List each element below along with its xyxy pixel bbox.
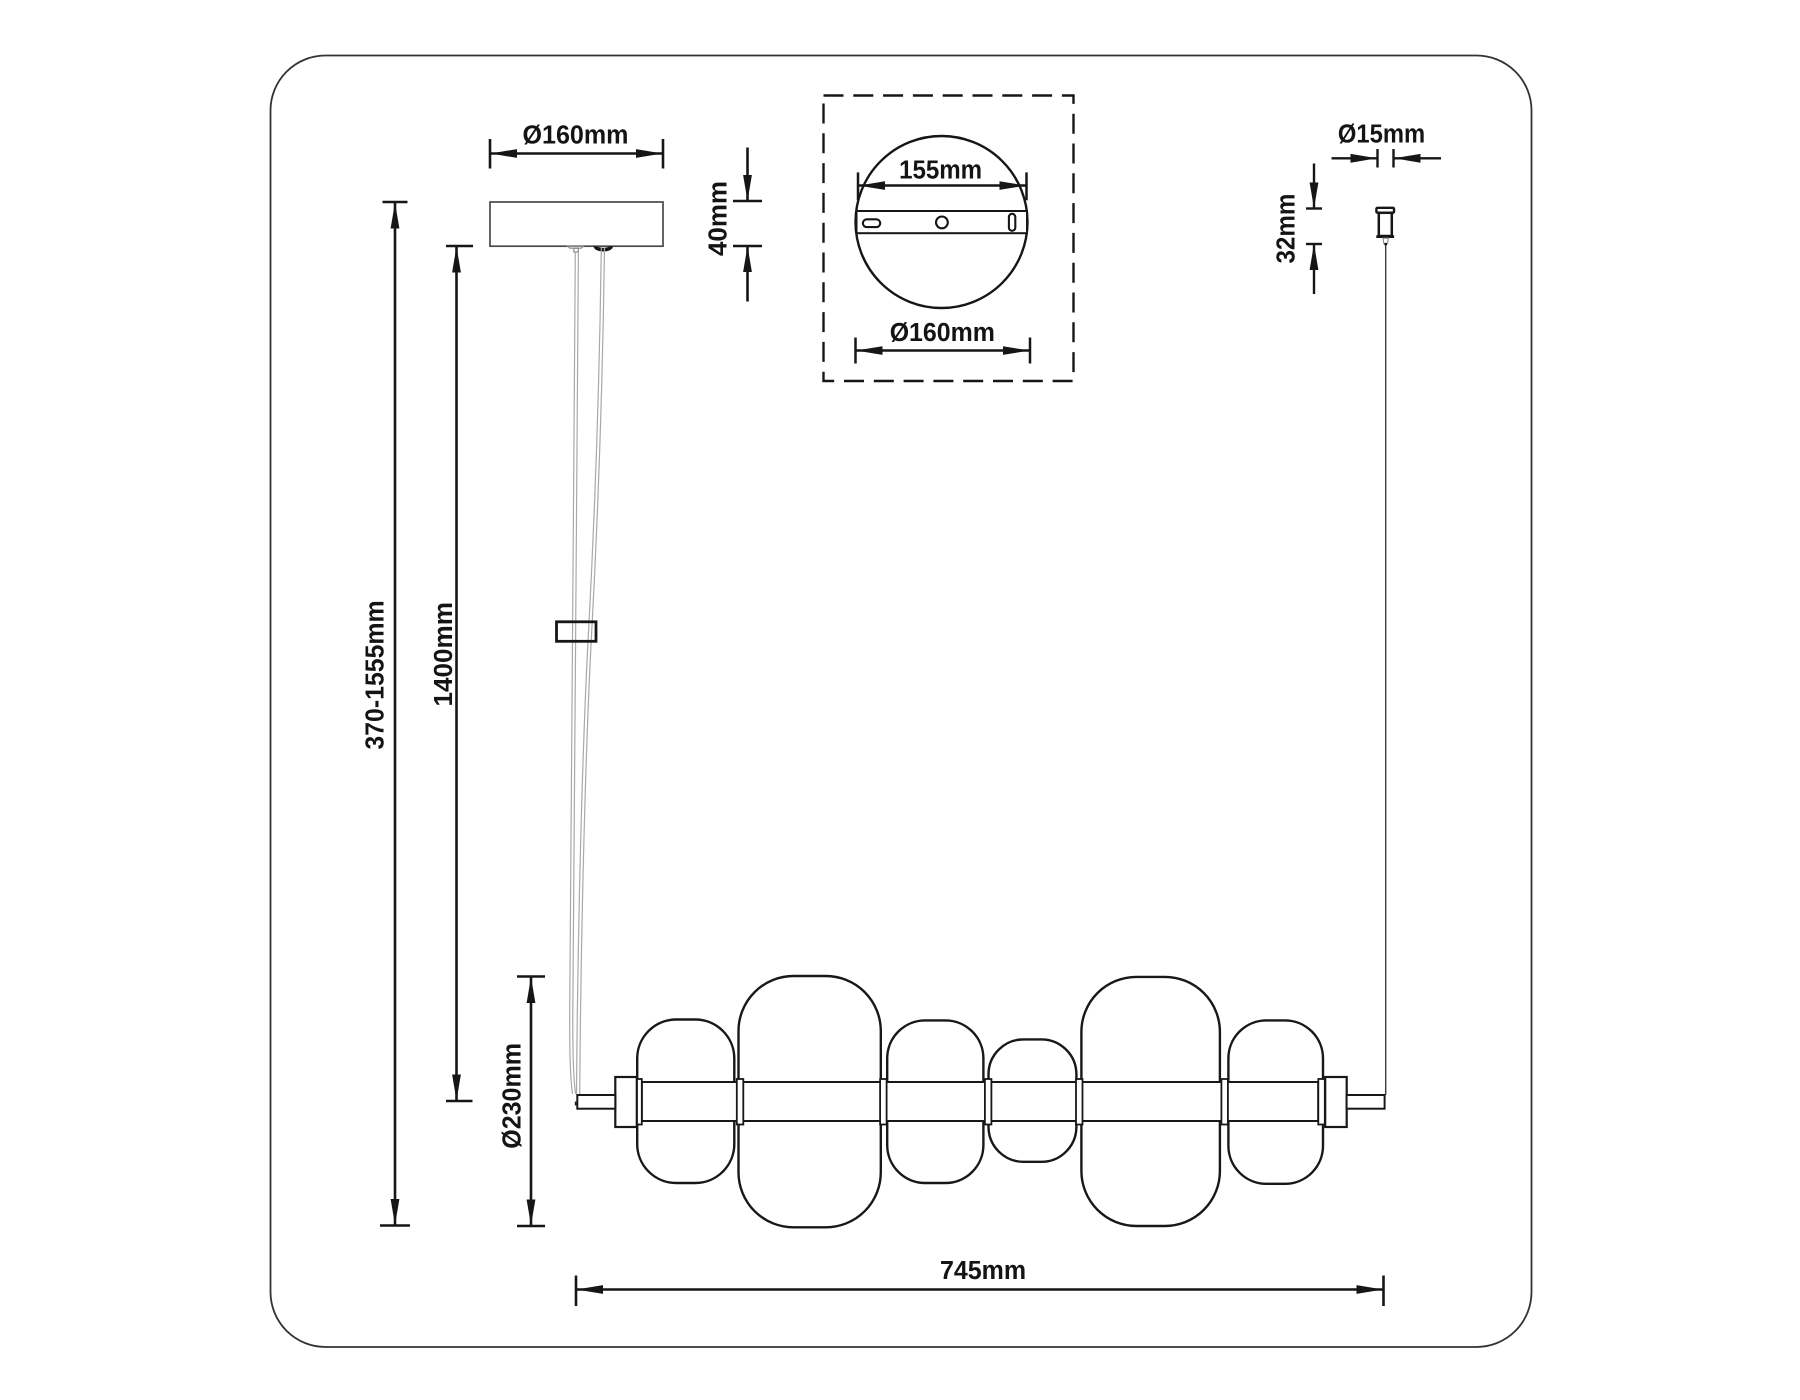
svg-text:1400mm: 1400mm: [430, 602, 458, 706]
svg-text:Ø160mm: Ø160mm: [523, 121, 629, 149]
svg-text:Ø160mm: Ø160mm: [890, 319, 995, 347]
svg-text:Ø15mm: Ø15mm: [1338, 121, 1425, 149]
svg-text:32mm: 32mm: [1272, 194, 1300, 264]
svg-text:745mm: 745mm: [940, 1257, 1026, 1285]
svg-text:40mm: 40mm: [705, 181, 733, 256]
svg-text:370-1555mm: 370-1555mm: [362, 600, 390, 749]
svg-text:155mm: 155mm: [899, 157, 982, 185]
svg-text:Ø230mm: Ø230mm: [499, 1043, 527, 1149]
